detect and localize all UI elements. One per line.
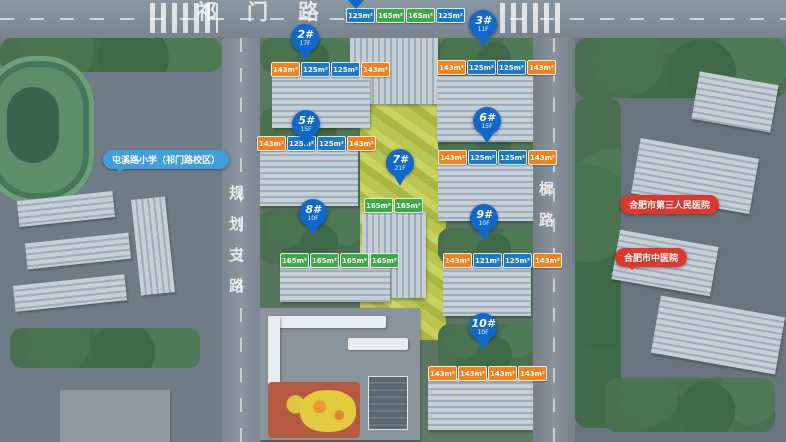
building-pin-3[interactable]: 3# 11F [469,10,497,47]
building-pin-10[interactable]: 10# 10F [469,313,497,350]
area-tag: 143m² [361,62,390,77]
building-pin-9[interactable]: 9# 10F [470,204,498,241]
tree-row [10,328,200,368]
building-pin-8[interactable]: 8# 10F [299,199,327,236]
area-banner-8: 165m² 165m² 165m² 165m² [280,253,400,268]
area-tag: 165m² [310,253,339,268]
pin-floor-count: 11F [477,27,488,33]
area-tag: 121m² [473,253,502,268]
area-tag: 165m² [280,253,309,268]
pin-floor-count: 17F [299,41,310,47]
pin-tail-icon [480,132,494,144]
building-roof-10 [428,378,533,430]
pin-building-number: 10# [472,318,495,329]
road-label-planned-branch: 规划支路 [226,185,247,309]
pin-head: 9# 10F [470,204,498,232]
road-label-qimen: 祁门路 [196,0,349,26]
building-pin-7[interactable]: 7# 21F [386,149,414,186]
area-tag: 143m² [347,136,376,151]
area-tag: 143m² [458,366,487,381]
pin-floor-count: 10F [478,221,489,227]
pin-floor-count: 10F [477,330,488,336]
pin-tail-icon [476,35,490,47]
pin-tail-icon [393,174,407,186]
area-tag: 125m² [346,8,375,23]
pin-building-number: 7# [392,154,407,165]
pin-head: 10# 10F [469,313,497,341]
area-banner-9: 143m² 121m² 125m² 143m² [443,253,563,268]
area-tag: 165m² [340,253,369,268]
left-district [0,38,222,442]
area-tag: 143m² [518,366,547,381]
stadium-track [0,56,94,204]
partial-pin-tip-icon [348,0,364,9]
pin-floor-count: 15F [481,124,492,130]
area-tag: 125m² [468,150,497,165]
pin-head: 7# 21F [386,149,414,177]
area-tag: 125m² [467,60,496,75]
pin-building-number: 8# [305,204,320,215]
pin-tail-icon [306,224,320,236]
area-tag: 125m² [503,253,532,268]
building-pin-2[interactable]: 2# 17F [291,24,319,61]
pin-head: 5# 15F [292,110,320,138]
building-roof-2 [272,76,370,128]
pin-floor-count: 21F [394,166,405,172]
building-roof-9 [443,266,531,316]
pin-floor-count: 15F [300,127,311,133]
area-banner-7: 165m² 165m² [364,198,424,213]
building-roof-5 [258,150,358,206]
school-building [25,233,131,270]
school-building [13,274,127,312]
school-building [131,196,175,295]
kindergarten-roof [268,316,280,386]
area-tag: 143m² [488,366,517,381]
building-pin-6[interactable]: 6# 15F [473,107,501,144]
area-tag: 125m² [317,136,346,151]
right-district [575,38,786,442]
area-tag: 143m² [428,366,457,381]
poi-hospital-third-bubble[interactable]: 合肥市第三人民医院 [620,195,719,214]
area-tag: 125m² [331,62,360,77]
building-roof [60,390,170,442]
area-tag: 143m² [438,150,467,165]
area-tag: 143m² [528,150,557,165]
area-banner-6: 143m² 125m² 125m² 143m² [438,150,558,165]
pin-tail-icon [476,338,490,350]
pin-building-number: 6# [479,112,494,123]
area-tag: 165m² [394,198,423,213]
area-tag: 165m² [364,198,393,213]
amenity-structure [368,376,408,430]
area-tag: 143m² [533,253,562,268]
stadium-field [7,87,59,163]
building-pin-5[interactable]: 5# 15F [292,110,320,147]
area-tag: 143m² [271,62,300,77]
area-tag: 165m² [376,8,405,23]
playground-yellow-area [300,390,356,432]
pin-tail-icon [299,135,313,147]
tree-row [605,378,775,432]
pin-building-number: 2# [297,29,312,40]
area-tag: 143m² [257,136,286,151]
pin-tail-icon [298,49,312,61]
area-tag: 125m² [301,62,330,77]
pin-building-number: 3# [475,15,490,26]
masterplan-aerial-map: 祁门路 规划支路 棠樨路 125m² 165m² 165m² 125m² 143… [0,0,786,442]
pin-head: 6# 15F [473,107,501,135]
area-tag: 125m² [497,60,526,75]
area-tag: 125m² [436,8,465,23]
poi-hospital-tcm-bubble[interactable]: 合肥市中医院 [615,248,687,267]
area-tag: 165m² [370,253,399,268]
pin-tail-icon [477,229,491,241]
pin-head: 2# 17F [291,24,319,52]
hospital-building [651,296,785,375]
area-tag: 143m² [437,60,466,75]
area-tag: 143m² [443,253,472,268]
poi-school-bubble[interactable]: 屯溪路小学（祁门路校区） [103,150,229,169]
area-tag: 125m² [498,150,527,165]
pin-head: 3# 11F [469,10,497,38]
kindergarten-roof [348,338,408,350]
area-banner-2: 143m² 125m² 125m² 143m² [271,62,391,77]
pin-floor-count: 10F [307,216,318,222]
building-roof-8 [280,266,390,302]
crosswalk [500,3,562,33]
area-banner-10: 143m² 143m² 143m² 143m² [428,366,548,381]
area-banner-1: 125m² 165m² 165m² 125m² [346,8,466,23]
pin-building-number: 9# [476,209,491,220]
pin-head: 8# 10F [299,199,327,227]
area-tag: 143m² [527,60,556,75]
area-banner-3: 143m² 125m² 125m² 143m² [437,60,557,75]
pin-building-number: 5# [298,115,313,126]
kindergarten-roof [268,316,386,328]
area-tag: 165m² [406,8,435,23]
